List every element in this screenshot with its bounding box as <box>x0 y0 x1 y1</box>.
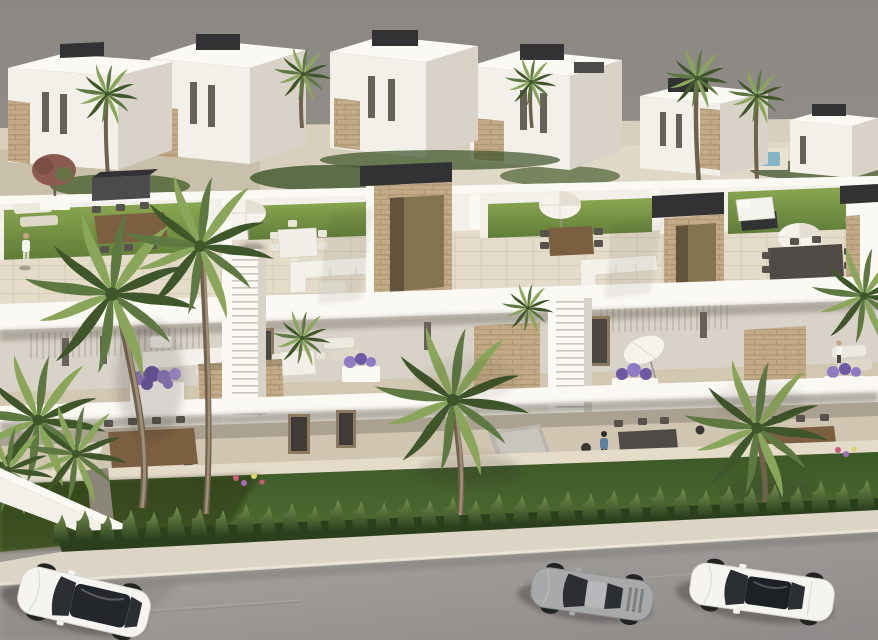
pergola-roof-box <box>92 169 158 201</box>
window-slit <box>700 312 707 338</box>
ground-door <box>336 410 356 448</box>
villa-3 <box>330 30 478 158</box>
daybed <box>736 197 778 231</box>
slat-shadow <box>600 305 730 334</box>
ground-door <box>288 414 310 454</box>
villa-2 <box>150 34 306 164</box>
pot-plant <box>696 426 705 435</box>
stair-tower-1 <box>360 162 452 302</box>
architectural-render <box>0 0 878 640</box>
